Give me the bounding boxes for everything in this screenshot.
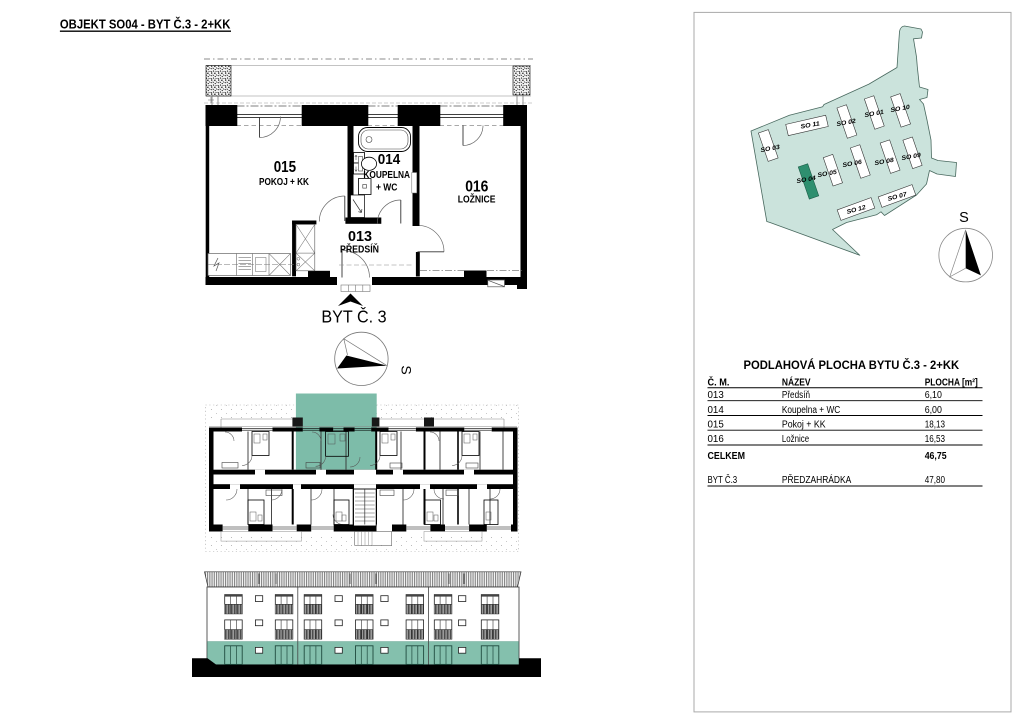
svg-text:014: 014 [378, 151, 401, 168]
svg-text:NÁZEV: NÁZEV [782, 375, 811, 388]
svg-text:015: 015 [708, 420, 725, 431]
svg-text:PODLAHOVÁ PLOCHA BYTU Č.3 - 2+: PODLAHOVÁ PLOCHA BYTU Č.3 - 2+KK [743, 357, 959, 372]
svg-text:PŘEDZAHRÁDKA: PŘEDZAHRÁDKA [782, 473, 852, 486]
svg-text:016: 016 [708, 434, 725, 445]
svg-text:BYT Č. 3: BYT Č. 3 [321, 306, 386, 327]
svg-text:Koupelna + WC: Koupelna + WC [782, 405, 840, 416]
svg-text:47,80: 47,80 [925, 475, 946, 486]
svg-text:6,10: 6,10 [925, 390, 943, 401]
svg-text:KOUPELNA: KOUPELNA [363, 169, 410, 181]
svg-text:OBJEKT SO04 - BYT Č.3 - 2+KK: OBJEKT SO04 - BYT Č.3 - 2+KK [60, 17, 231, 32]
svg-text:014: 014 [708, 405, 725, 416]
svg-text:PŘEDSÍŇ: PŘEDSÍŇ [340, 242, 379, 255]
svg-text:+ WC: + WC [376, 182, 398, 194]
svg-text:CELKEM: CELKEM [708, 451, 746, 462]
svg-text:16,53: 16,53 [925, 434, 946, 445]
svg-text:PLOCHA [m²]: PLOCHA [m²] [925, 377, 978, 388]
svg-text:S: S [399, 365, 415, 374]
svg-text:LOŽNICE: LOŽNICE [458, 193, 496, 206]
svg-text:Č. M.: Č. M. [708, 375, 730, 388]
svg-text:6,00: 6,00 [925, 405, 943, 416]
svg-text:015: 015 [274, 159, 297, 176]
svg-text:S: S [959, 210, 969, 226]
svg-text:18,13: 18,13 [925, 420, 946, 431]
svg-text:Ložnice: Ložnice [782, 434, 810, 445]
svg-text:46,75: 46,75 [925, 451, 947, 462]
svg-text:BYT Č.3: BYT Č.3 [708, 473, 738, 486]
svg-text:013: 013 [708, 390, 725, 401]
svg-text:POKOJ + KK: POKOJ + KK [259, 176, 309, 188]
svg-text:Předsíň: Předsíň [782, 390, 810, 401]
svg-text:Pokoj + KK: Pokoj + KK [782, 420, 826, 431]
